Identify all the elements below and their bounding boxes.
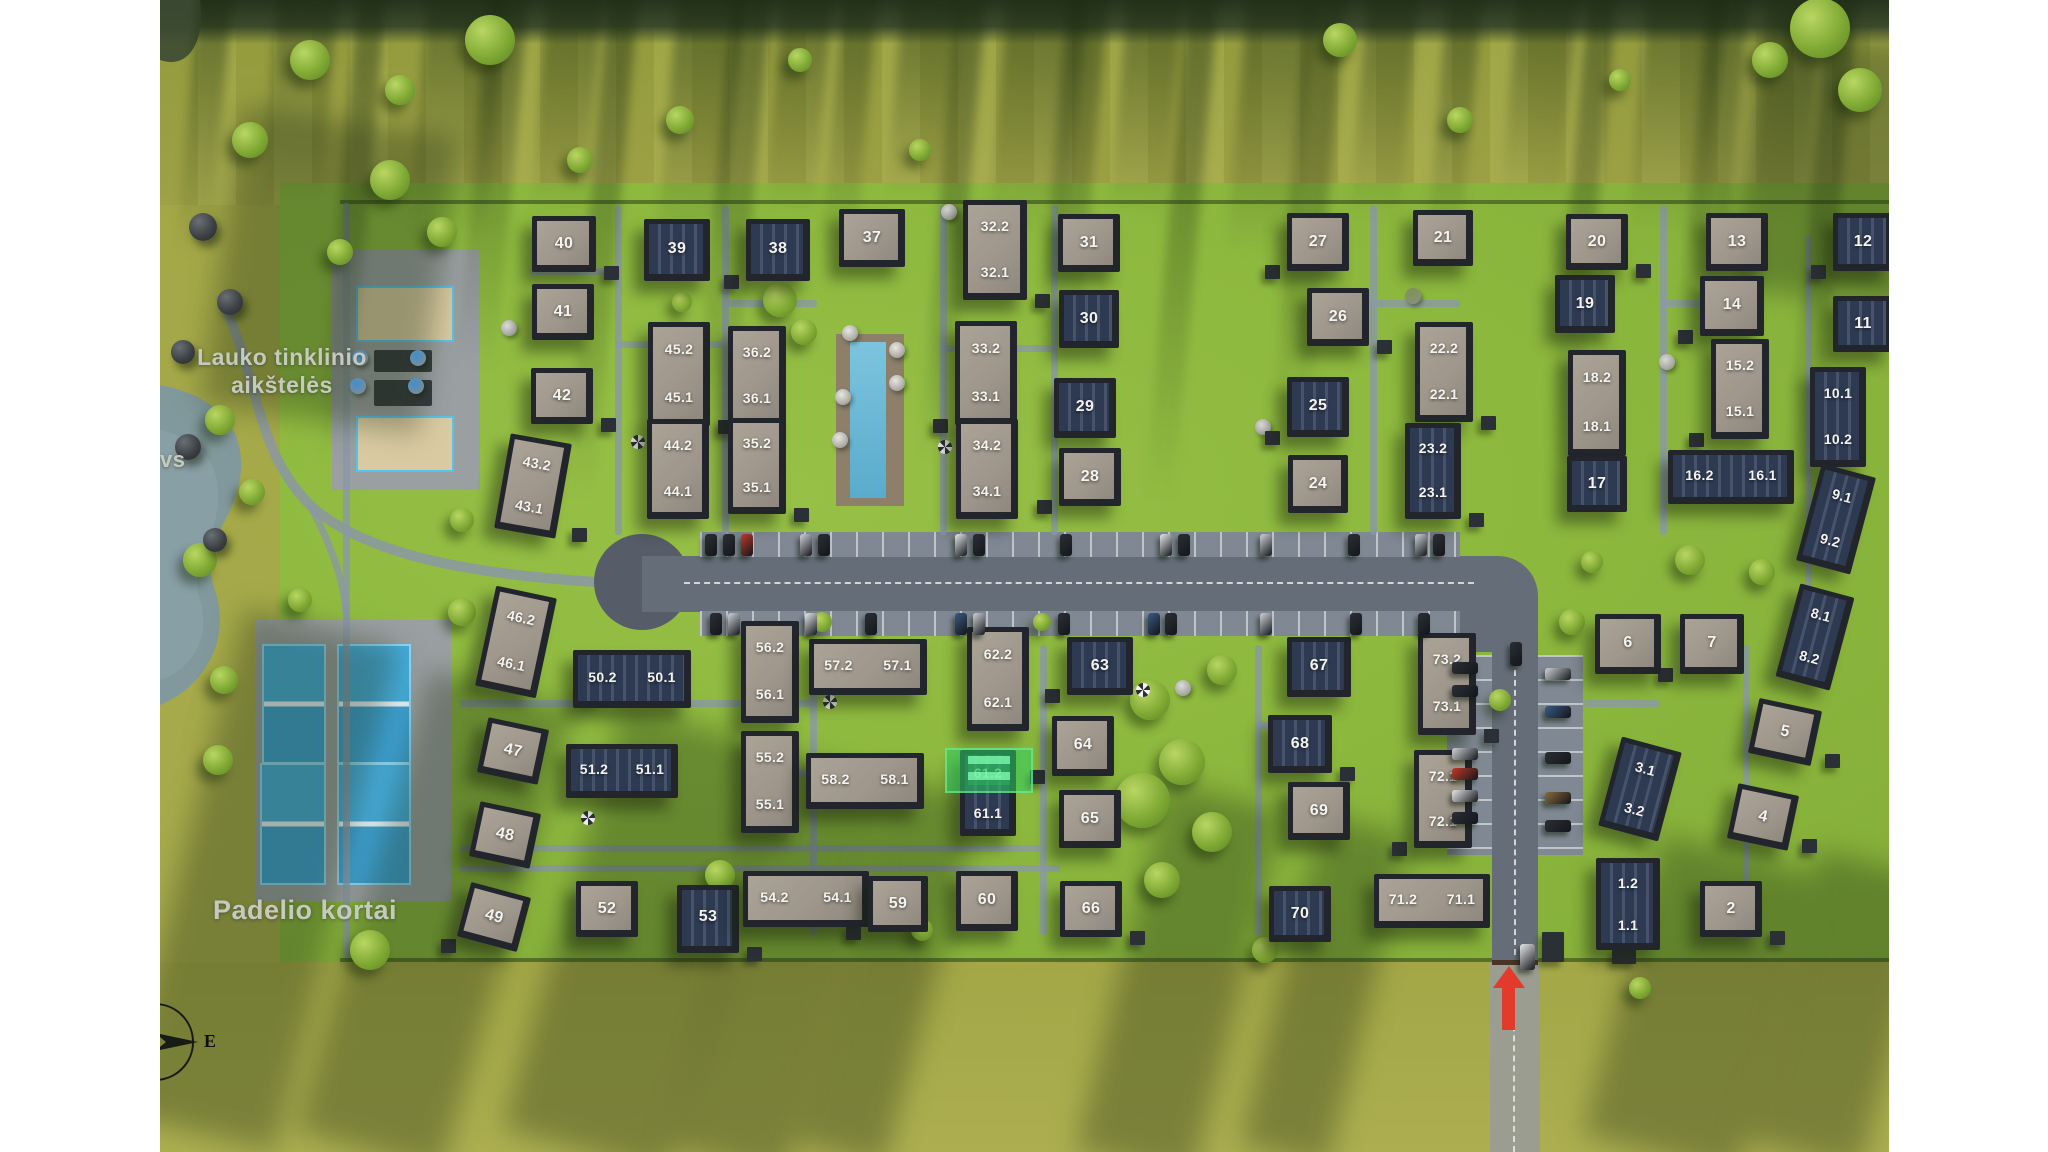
plot-label: 16.2 bbox=[1668, 467, 1731, 483]
plot-69[interactable]: 69 bbox=[1288, 782, 1350, 840]
umbrella-icon bbox=[501, 320, 517, 336]
tree bbox=[763, 283, 797, 317]
shed bbox=[604, 266, 619, 280]
footpath bbox=[1255, 645, 1262, 935]
tree bbox=[203, 745, 233, 775]
shed bbox=[1035, 294, 1050, 308]
car bbox=[1452, 685, 1478, 697]
plot-label: 56.1 bbox=[741, 686, 799, 702]
plot-label: 62.1 bbox=[967, 694, 1029, 710]
plot-label: 68 bbox=[1268, 735, 1332, 753]
plot-36[interactable]: 36.236.1 bbox=[728, 326, 786, 426]
car bbox=[973, 613, 985, 635]
car bbox=[1545, 752, 1571, 764]
plot-label: 19 bbox=[1555, 295, 1615, 313]
plot-label: 27 bbox=[1287, 233, 1349, 251]
umbrella-icon bbox=[410, 350, 426, 366]
plot-26[interactable]: 26 bbox=[1307, 288, 1369, 346]
plot-label: 70 bbox=[1269, 905, 1331, 923]
tree bbox=[1207, 655, 1237, 685]
tree bbox=[1629, 977, 1651, 999]
tree bbox=[1581, 551, 1603, 573]
plot-64[interactable]: 64 bbox=[1052, 716, 1114, 776]
padel-court bbox=[260, 763, 326, 885]
car bbox=[1545, 792, 1571, 804]
plot-label: 52 bbox=[576, 900, 638, 918]
plot-label: 10.2 bbox=[1810, 431, 1866, 447]
tree bbox=[1192, 812, 1232, 852]
shed bbox=[1037, 500, 1052, 514]
plot-label: 32.1 bbox=[963, 264, 1027, 280]
car bbox=[800, 534, 812, 556]
plot-label: 69 bbox=[1288, 802, 1350, 820]
shed bbox=[1469, 513, 1484, 527]
car bbox=[973, 534, 985, 556]
shed bbox=[572, 528, 587, 542]
plot-22[interactable]: 22.222.1 bbox=[1415, 322, 1473, 422]
compass-east-label: E bbox=[204, 1031, 216, 1052]
plot-35[interactable]: 35.235.1 bbox=[728, 418, 786, 514]
plot-label: 17 bbox=[1567, 475, 1627, 493]
plot-57[interactable]: 57.257.1 bbox=[809, 639, 927, 695]
car bbox=[1545, 668, 1571, 680]
shed bbox=[1045, 689, 1060, 703]
plot-label: 50.1 bbox=[632, 669, 691, 685]
boundary-north bbox=[340, 200, 1889, 204]
plot-label: 26 bbox=[1307, 308, 1369, 326]
pinwheel-icon bbox=[938, 440, 952, 454]
plot-39[interactable]: 39 bbox=[644, 219, 710, 281]
volleyball-label-line1: Lauko tinklinio bbox=[182, 344, 382, 371]
car bbox=[1060, 534, 1072, 556]
volleyball-label-line2: aikštelės bbox=[182, 372, 382, 399]
plot-label: 45.1 bbox=[648, 389, 710, 405]
plot-63[interactable]: 63 bbox=[1067, 637, 1133, 695]
plot-label: 34.1 bbox=[956, 483, 1018, 499]
tree bbox=[290, 40, 330, 80]
tree bbox=[385, 75, 415, 105]
plot-label: 36.1 bbox=[728, 390, 786, 406]
tree bbox=[1838, 68, 1882, 112]
tree bbox=[1144, 862, 1180, 898]
plot-label: 22.1 bbox=[1415, 386, 1473, 402]
tree bbox=[1752, 42, 1788, 78]
plot-label: 23.2 bbox=[1405, 440, 1461, 456]
plot-label: 30 bbox=[1059, 310, 1119, 328]
footpath bbox=[343, 203, 350, 958]
plot-label: 12 bbox=[1833, 233, 1889, 251]
shed bbox=[1340, 767, 1355, 781]
tree bbox=[370, 160, 410, 200]
plot-13[interactable]: 13 bbox=[1706, 213, 1768, 271]
plot-29[interactable]: 29 bbox=[1054, 378, 1116, 438]
plot-6[interactable]: 6 bbox=[1595, 614, 1661, 674]
tree bbox=[327, 239, 353, 265]
plot-66[interactable]: 66 bbox=[1060, 881, 1122, 937]
plot-59[interactable]: 59 bbox=[868, 876, 928, 932]
shed bbox=[1481, 416, 1496, 430]
shed bbox=[933, 419, 948, 433]
car bbox=[1348, 534, 1360, 556]
footpath bbox=[615, 205, 622, 535]
plot-label: 33.1 bbox=[955, 388, 1017, 404]
tree bbox=[666, 106, 694, 134]
tree bbox=[1489, 689, 1511, 711]
plot-45[interactable]: 45.245.1 bbox=[648, 322, 710, 426]
plot-7[interactable]: 7 bbox=[1680, 614, 1744, 674]
shed bbox=[794, 508, 809, 522]
plot-label: 7 bbox=[1680, 634, 1744, 652]
car bbox=[818, 534, 830, 556]
plot-label: 71.1 bbox=[1432, 891, 1490, 907]
main-road bbox=[642, 556, 1492, 612]
gate-building bbox=[1542, 932, 1564, 962]
plot-label: 33.2 bbox=[955, 340, 1017, 356]
plot-70[interactable]: 70 bbox=[1269, 886, 1331, 942]
plot-label: 35.2 bbox=[728, 435, 786, 451]
umbrella-icon bbox=[1175, 680, 1191, 696]
plot-label: 55.1 bbox=[741, 796, 799, 812]
plot-label: 54.2 bbox=[743, 889, 806, 905]
glamping-dome bbox=[203, 528, 227, 552]
volleyball-court bbox=[356, 416, 454, 472]
car bbox=[1418, 613, 1430, 635]
plot-38[interactable]: 38 bbox=[746, 219, 810, 281]
plot-label: 53 bbox=[677, 908, 739, 926]
plot-42[interactable]: 42 bbox=[531, 368, 593, 424]
plot-14[interactable]: 14 bbox=[1700, 276, 1764, 336]
plot-44[interactable]: 44.244.1 bbox=[647, 419, 709, 519]
shed bbox=[1484, 729, 1499, 743]
shed bbox=[601, 418, 616, 432]
plot-label: 58.2 bbox=[806, 771, 865, 787]
shed bbox=[1265, 431, 1280, 445]
plot-label: 73.1 bbox=[1418, 698, 1476, 714]
plot-52[interactable]: 52 bbox=[576, 881, 638, 937]
plot-56[interactable]: 56.256.1 bbox=[741, 621, 799, 723]
shed bbox=[1811, 265, 1826, 279]
masterplan-photo: 4039383732.232.1312721201312412619141145… bbox=[160, 0, 1889, 1152]
car bbox=[1058, 613, 1070, 635]
shed bbox=[1825, 754, 1840, 768]
plot-11[interactable]: 11 bbox=[1833, 296, 1889, 352]
plot-23[interactable]: 23.223.1 bbox=[1405, 423, 1461, 519]
tree bbox=[448, 598, 476, 626]
tree bbox=[672, 292, 692, 312]
plot-label: 6 bbox=[1595, 634, 1661, 652]
tree bbox=[232, 122, 268, 158]
plot-24[interactable]: 24 bbox=[1288, 455, 1348, 513]
plot-label: 35.1 bbox=[728, 479, 786, 495]
plot-label: 61.1 bbox=[960, 805, 1016, 821]
car bbox=[1545, 706, 1571, 718]
car bbox=[1452, 748, 1478, 760]
plot-65[interactable]: 65 bbox=[1059, 790, 1121, 848]
shed bbox=[1392, 842, 1407, 856]
plot-53[interactable]: 53 bbox=[677, 885, 739, 953]
car bbox=[705, 534, 717, 556]
swimming-pool bbox=[850, 342, 886, 498]
car bbox=[1545, 820, 1571, 832]
tree bbox=[205, 405, 235, 435]
footpath bbox=[1051, 205, 1058, 535]
plot-10[interactable]: 10.110.2 bbox=[1810, 367, 1866, 467]
plot-label: 64 bbox=[1052, 736, 1114, 754]
plot-label: 51.2 bbox=[566, 761, 622, 777]
plot-label: 1.1 bbox=[1596, 917, 1660, 933]
plot-label: 13 bbox=[1706, 233, 1768, 251]
plot-16[interactable]: 16.216.1 bbox=[1668, 450, 1794, 504]
shed bbox=[441, 939, 456, 953]
plot-31[interactable]: 31 bbox=[1058, 214, 1120, 272]
car bbox=[1452, 790, 1478, 802]
plot-label: 34.2 bbox=[956, 437, 1018, 453]
shed bbox=[1377, 340, 1392, 354]
plot-label: 44.2 bbox=[647, 437, 709, 453]
plot-label: 15.1 bbox=[1711, 403, 1769, 419]
plot-34[interactable]: 34.234.1 bbox=[956, 419, 1018, 519]
parking-north[interactable] bbox=[700, 532, 1460, 557]
shed bbox=[1130, 931, 1145, 945]
plot-19[interactable]: 19 bbox=[1555, 275, 1615, 333]
plot-67[interactable]: 67 bbox=[1287, 637, 1351, 697]
plot-55[interactable]: 55.255.1 bbox=[741, 731, 799, 833]
car bbox=[1260, 534, 1272, 556]
plot-label: 39 bbox=[644, 240, 710, 258]
plot-20[interactable]: 20 bbox=[1566, 214, 1628, 270]
car bbox=[1452, 768, 1478, 780]
plot-label: 60 bbox=[956, 891, 1018, 909]
car bbox=[865, 613, 877, 635]
pinwheel-icon bbox=[1136, 683, 1150, 697]
tree bbox=[239, 479, 265, 505]
plot-label: 23.1 bbox=[1405, 484, 1461, 500]
plot-label: 40 bbox=[532, 235, 596, 253]
plot-label: 31 bbox=[1058, 234, 1120, 252]
footpath bbox=[460, 845, 1040, 852]
plot-28[interactable]: 28 bbox=[1059, 448, 1121, 506]
umbrella-icon bbox=[842, 325, 858, 341]
plot-label: 57.2 bbox=[809, 657, 868, 673]
plot-25[interactable]: 25 bbox=[1287, 377, 1349, 437]
plot-label: 18.2 bbox=[1568, 369, 1626, 385]
plot-label: 50.2 bbox=[573, 669, 632, 685]
plot-label: 45.2 bbox=[648, 341, 710, 357]
plot-71[interactable]: 71.271.1 bbox=[1374, 874, 1490, 928]
car bbox=[1148, 613, 1160, 635]
tree bbox=[450, 508, 474, 532]
plot-60[interactable]: 60 bbox=[956, 871, 1018, 931]
tree bbox=[350, 930, 390, 970]
tree bbox=[210, 666, 238, 694]
tree bbox=[427, 217, 457, 247]
pond-label-partial: vs bbox=[160, 447, 185, 473]
plot-54[interactable]: 54.254.1 bbox=[743, 871, 869, 927]
selected-plot-highlight[interactable] bbox=[945, 748, 1033, 793]
car bbox=[741, 534, 753, 556]
padel-label: Padelio kortai bbox=[195, 895, 415, 926]
tree bbox=[788, 48, 812, 72]
plot-label: 66 bbox=[1060, 900, 1122, 918]
gate-building bbox=[1612, 948, 1636, 964]
plot-41[interactable]: 41 bbox=[532, 284, 594, 340]
page: 4039383732.232.1312721201312412619141145… bbox=[0, 0, 2048, 1152]
plot-1[interactable]: 1.21.1 bbox=[1596, 858, 1660, 950]
plot-21[interactable]: 21 bbox=[1413, 210, 1473, 266]
plot-58[interactable]: 58.258.1 bbox=[806, 753, 924, 809]
car bbox=[723, 534, 735, 556]
umbrella-icon bbox=[408, 378, 424, 394]
plot-label: 20 bbox=[1566, 233, 1628, 251]
plot-label: 44.1 bbox=[647, 483, 709, 499]
plot-label: 59 bbox=[868, 895, 928, 913]
pinwheel-icon bbox=[581, 811, 595, 825]
umbrella-icon bbox=[1659, 354, 1675, 370]
footpath bbox=[940, 205, 947, 535]
car bbox=[1452, 812, 1478, 824]
shed bbox=[1678, 330, 1693, 344]
glamping-dome bbox=[189, 213, 217, 241]
footpath bbox=[1584, 700, 1660, 707]
car bbox=[728, 613, 740, 635]
tree bbox=[791, 319, 817, 345]
shed bbox=[1689, 433, 1704, 447]
umbrella-icon bbox=[1405, 288, 1421, 304]
plot-label: 11 bbox=[1833, 315, 1889, 333]
car bbox=[1415, 534, 1427, 556]
tree bbox=[288, 588, 312, 612]
plot-17[interactable]: 17 bbox=[1567, 456, 1627, 512]
plot-label: 55.2 bbox=[741, 749, 799, 765]
tree bbox=[1033, 613, 1051, 631]
volleyball-court bbox=[356, 286, 454, 342]
entrance-arrow-icon bbox=[1493, 966, 1525, 1030]
plot-label: 24 bbox=[1288, 475, 1348, 493]
tree bbox=[1609, 69, 1631, 91]
car bbox=[1165, 613, 1177, 635]
car bbox=[805, 613, 817, 635]
plot-label: 14 bbox=[1700, 296, 1764, 314]
plot-68[interactable]: 68 bbox=[1268, 715, 1332, 773]
car bbox=[1160, 534, 1172, 556]
plot-label: 2 bbox=[1700, 900, 1762, 918]
plot-label: 58.1 bbox=[865, 771, 924, 787]
car bbox=[1350, 613, 1362, 635]
plot-label: 36.2 bbox=[728, 344, 786, 360]
plot-label: 63 bbox=[1067, 657, 1133, 675]
boundary-south bbox=[340, 958, 1889, 962]
tree bbox=[567, 147, 593, 173]
plot-18[interactable]: 18.218.1 bbox=[1568, 350, 1626, 456]
tree bbox=[1675, 545, 1705, 575]
car bbox=[955, 534, 967, 556]
plot-label: 51.1 bbox=[622, 761, 678, 777]
plot-73[interactable]: 73.273.1 bbox=[1418, 633, 1476, 735]
plot-27[interactable]: 27 bbox=[1287, 213, 1349, 271]
plot-51[interactable]: 51.251.1 bbox=[566, 744, 678, 798]
plot-15[interactable]: 15.215.1 bbox=[1711, 339, 1769, 439]
plot-50[interactable]: 50.250.1 bbox=[573, 650, 691, 708]
plot-label: 56.2 bbox=[741, 639, 799, 655]
plot-label: 42 bbox=[531, 387, 593, 405]
plot-label: 16.1 bbox=[1731, 467, 1794, 483]
shed bbox=[1265, 265, 1280, 279]
plot-40[interactable]: 40 bbox=[532, 216, 596, 272]
plot-12[interactable]: 12 bbox=[1833, 213, 1889, 271]
plot-30[interactable]: 30 bbox=[1059, 290, 1119, 348]
plot-label: 18.1 bbox=[1568, 418, 1626, 434]
shed bbox=[1636, 264, 1651, 278]
car bbox=[1260, 613, 1272, 635]
tree bbox=[1749, 559, 1775, 585]
plot-label: 15.2 bbox=[1711, 357, 1769, 373]
umbrella-icon bbox=[835, 389, 851, 405]
umbrella-icon bbox=[941, 204, 957, 220]
shed bbox=[846, 926, 861, 940]
pinwheel-icon bbox=[823, 695, 837, 709]
plot-label: 1.2 bbox=[1596, 875, 1660, 891]
plot-label: 67 bbox=[1287, 657, 1351, 675]
plot-label: 65 bbox=[1059, 810, 1121, 828]
tree bbox=[1447, 107, 1473, 133]
plot-33[interactable]: 33.233.1 bbox=[955, 321, 1017, 425]
tree bbox=[1559, 609, 1585, 635]
car bbox=[1510, 642, 1522, 666]
car bbox=[710, 613, 722, 635]
tree bbox=[1115, 773, 1170, 828]
plot-2[interactable]: 2 bbox=[1700, 881, 1762, 937]
plot-label: 22.2 bbox=[1415, 340, 1473, 356]
tree bbox=[1790, 0, 1850, 58]
shed bbox=[1802, 839, 1817, 853]
plot-label: 28 bbox=[1059, 468, 1121, 486]
umbrella-icon bbox=[889, 342, 905, 358]
car bbox=[955, 613, 967, 635]
plot-label: 54.1 bbox=[806, 889, 869, 905]
umbrella-icon bbox=[832, 432, 848, 448]
tree bbox=[1159, 739, 1205, 785]
pinwheel-icon bbox=[631, 435, 645, 449]
plot-62[interactable]: 62.262.1 bbox=[967, 627, 1029, 731]
plot-label: 41 bbox=[532, 303, 594, 321]
plot-label: 57.1 bbox=[868, 657, 927, 673]
ns-road-centerline bbox=[1514, 660, 1516, 955]
plot-label: 29 bbox=[1054, 398, 1116, 416]
plot-label: 10.1 bbox=[1810, 385, 1866, 401]
plot-label: 71.2 bbox=[1374, 891, 1432, 907]
footpath bbox=[1660, 205, 1667, 535]
umbrella-icon bbox=[889, 375, 905, 391]
plot-label: 37 bbox=[839, 229, 905, 247]
tree bbox=[1323, 23, 1357, 57]
plot-label: 21 bbox=[1413, 229, 1473, 247]
glamping-dome bbox=[217, 289, 243, 315]
forest-edge bbox=[160, 0, 1889, 44]
plot-label: 62.2 bbox=[967, 646, 1029, 662]
shed bbox=[1770, 931, 1785, 945]
shed bbox=[724, 275, 739, 289]
plot-label: 25 bbox=[1287, 397, 1349, 415]
car bbox=[1452, 662, 1478, 674]
plot-32[interactable]: 32.232.1 bbox=[963, 200, 1027, 300]
shed bbox=[747, 947, 762, 961]
plot-37[interactable]: 37 bbox=[839, 209, 905, 267]
plot-label: 38 bbox=[746, 240, 810, 258]
footpath bbox=[1370, 205, 1377, 535]
tree bbox=[465, 15, 515, 65]
car bbox=[1178, 534, 1190, 556]
plot-label: 32.2 bbox=[963, 218, 1027, 234]
